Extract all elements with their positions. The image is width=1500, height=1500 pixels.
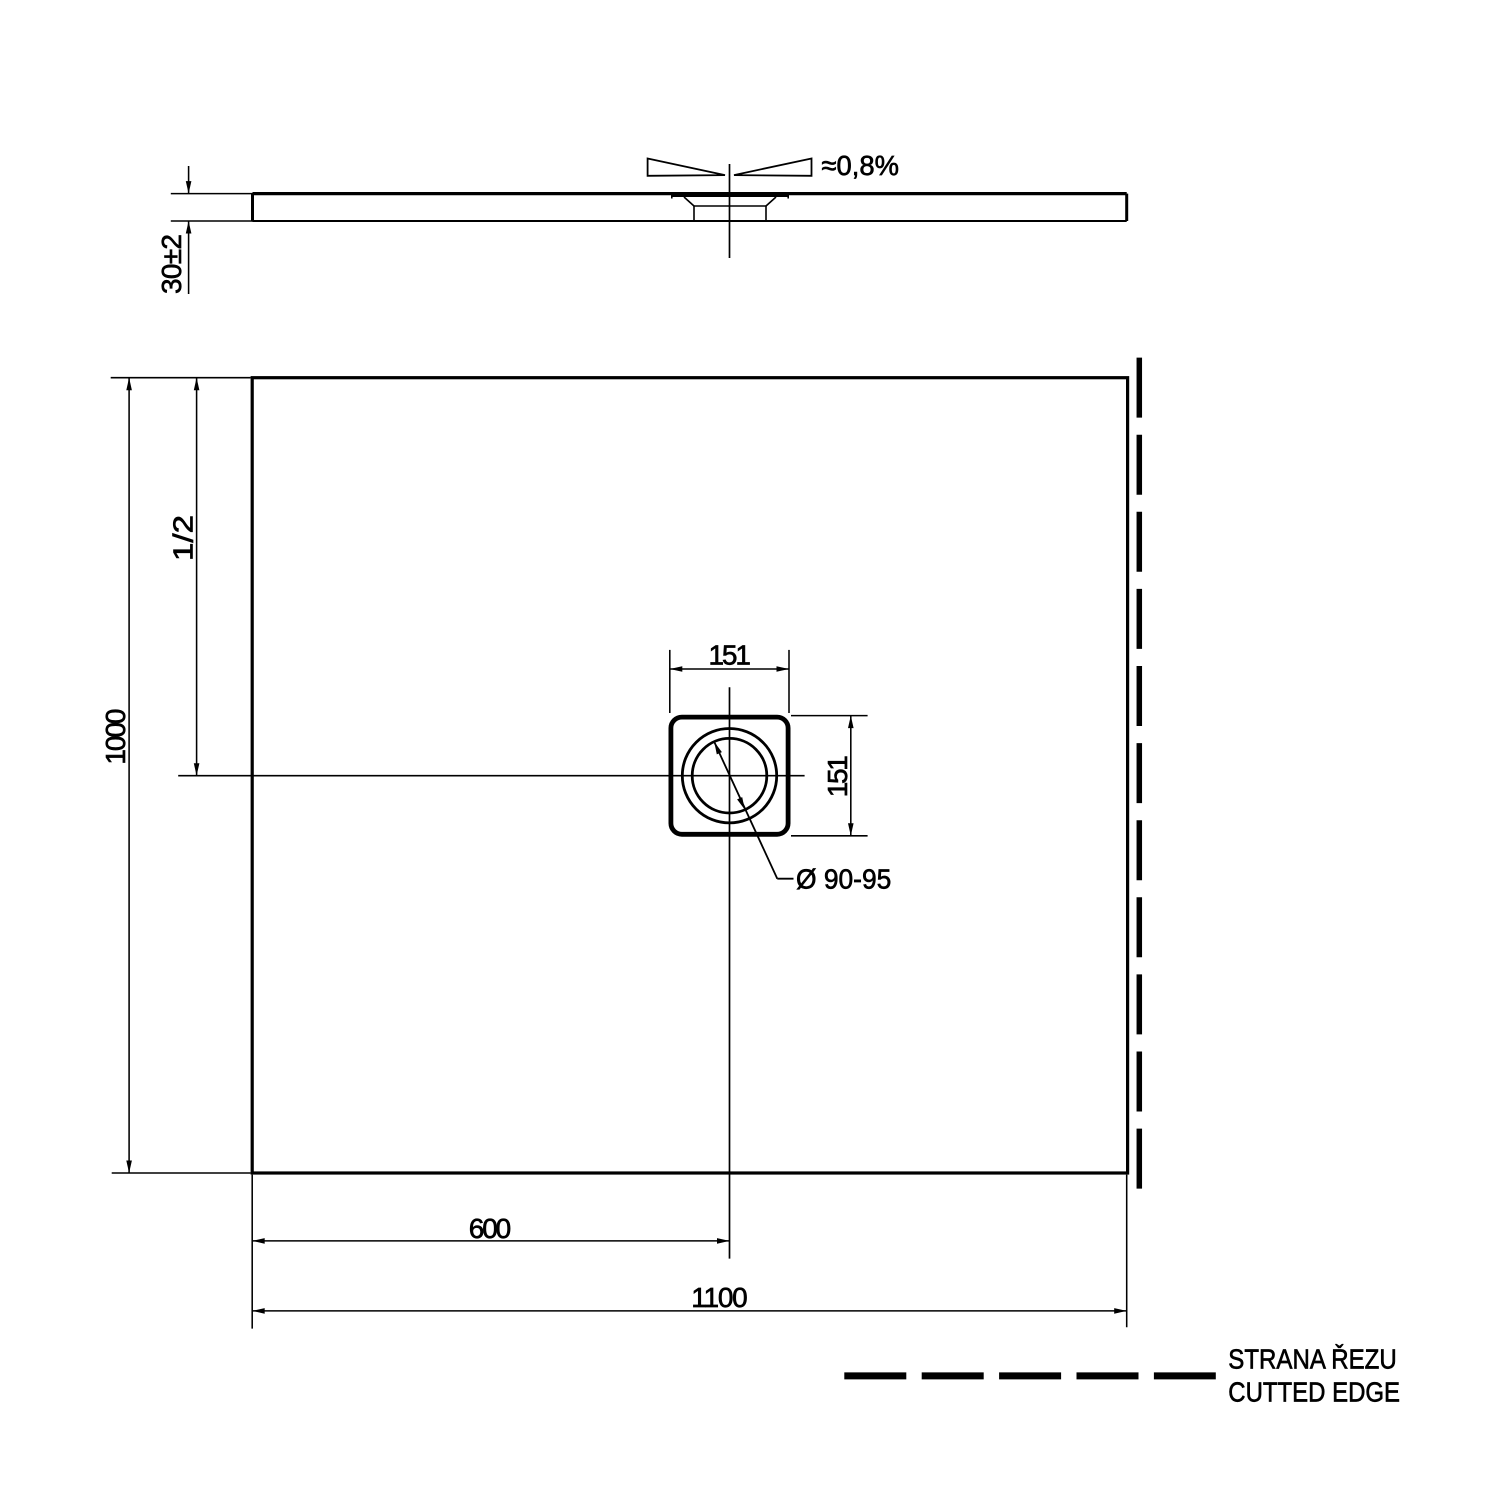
svg-text:151: 151: [709, 640, 751, 671]
svg-text:151: 151: [822, 755, 853, 797]
svg-text:≈0,8%: ≈0,8%: [822, 150, 900, 181]
svg-text:CUTTED EDGE: CUTTED EDGE: [1228, 1377, 1400, 1408]
svg-text:30±2: 30±2: [156, 234, 187, 294]
svg-text:1000: 1000: [100, 709, 131, 765]
svg-text:600: 600: [469, 1213, 512, 1244]
svg-text:STRANA ŘEZU: STRANA ŘEZU: [1228, 1343, 1396, 1374]
svg-text:1/2: 1/2: [168, 515, 199, 561]
svg-text:1100: 1100: [691, 1282, 747, 1313]
svg-text:Ø 90-95: Ø 90-95: [796, 864, 891, 895]
